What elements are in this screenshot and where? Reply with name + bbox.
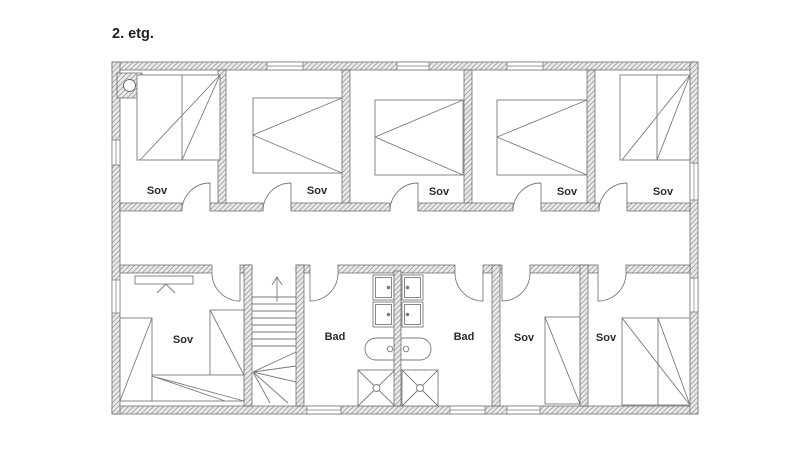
bed bbox=[375, 100, 463, 175]
beds-top-row bbox=[137, 75, 690, 175]
floor-title: 2. etg. bbox=[112, 26, 154, 42]
room-label-bedroom-bottom-mid: Sov bbox=[514, 332, 535, 344]
room-label-bedroom-top-4: Sov bbox=[557, 186, 578, 198]
bed bbox=[620, 75, 690, 160]
window bbox=[690, 278, 698, 312]
door bbox=[310, 273, 338, 301]
stair-direction-arrow bbox=[272, 277, 282, 302]
shower bbox=[358, 370, 395, 406]
room-label-bathroom-right: Bad bbox=[454, 331, 475, 343]
sink bbox=[373, 275, 394, 300]
window bbox=[397, 62, 429, 70]
bed bbox=[622, 318, 690, 405]
window bbox=[507, 406, 540, 414]
window bbox=[507, 62, 543, 70]
window bbox=[112, 280, 120, 313]
bed bbox=[253, 98, 342, 173]
bed bbox=[137, 75, 220, 160]
outer-wall-left bbox=[112, 62, 120, 414]
shower bbox=[402, 370, 438, 406]
room-label-bedroom-bottom-right: Sov bbox=[596, 332, 617, 344]
bed bbox=[497, 100, 587, 175]
floorplan-page: 2. etg. bbox=[0, 0, 800, 450]
door bbox=[502, 273, 530, 301]
beds-bottom-row bbox=[545, 317, 690, 405]
wardrobe bbox=[135, 276, 193, 293]
room-label-bedroom-bottom-left: Sov bbox=[173, 334, 194, 346]
room-label-bathroom-left: Bad bbox=[325, 331, 346, 343]
door bbox=[455, 273, 483, 301]
sink bbox=[373, 302, 394, 327]
door bbox=[182, 183, 210, 211]
window bbox=[690, 163, 698, 200]
staircase bbox=[252, 277, 296, 403]
stair-wall-left bbox=[244, 265, 252, 406]
door bbox=[212, 273, 240, 301]
door bbox=[513, 183, 541, 211]
sink bbox=[402, 275, 423, 300]
chimney-flue bbox=[124, 80, 136, 92]
outer-wall-right bbox=[690, 62, 698, 414]
window bbox=[267, 62, 303, 70]
window bbox=[307, 406, 341, 414]
bed bbox=[545, 317, 580, 404]
window bbox=[450, 406, 485, 414]
door bbox=[263, 183, 291, 211]
sink bbox=[402, 302, 423, 327]
room-label-bedroom-top-2: Sov bbox=[307, 185, 328, 197]
door bbox=[390, 183, 418, 211]
floorplan-drawing: 2. etg. bbox=[0, 0, 800, 450]
window bbox=[112, 140, 120, 165]
outer-wall-bottom bbox=[112, 406, 698, 414]
bathroom-dividing-wall bbox=[394, 271, 401, 406]
bed bbox=[120, 310, 244, 401]
stair-wall-right bbox=[296, 265, 304, 406]
room-label-bedroom-top-1: Sov bbox=[147, 185, 168, 197]
door bbox=[599, 183, 627, 211]
room-label-bedroom-top-3: Sov bbox=[429, 186, 450, 198]
room-label-bedroom-top-5: Sov bbox=[653, 186, 674, 198]
door bbox=[598, 273, 626, 301]
